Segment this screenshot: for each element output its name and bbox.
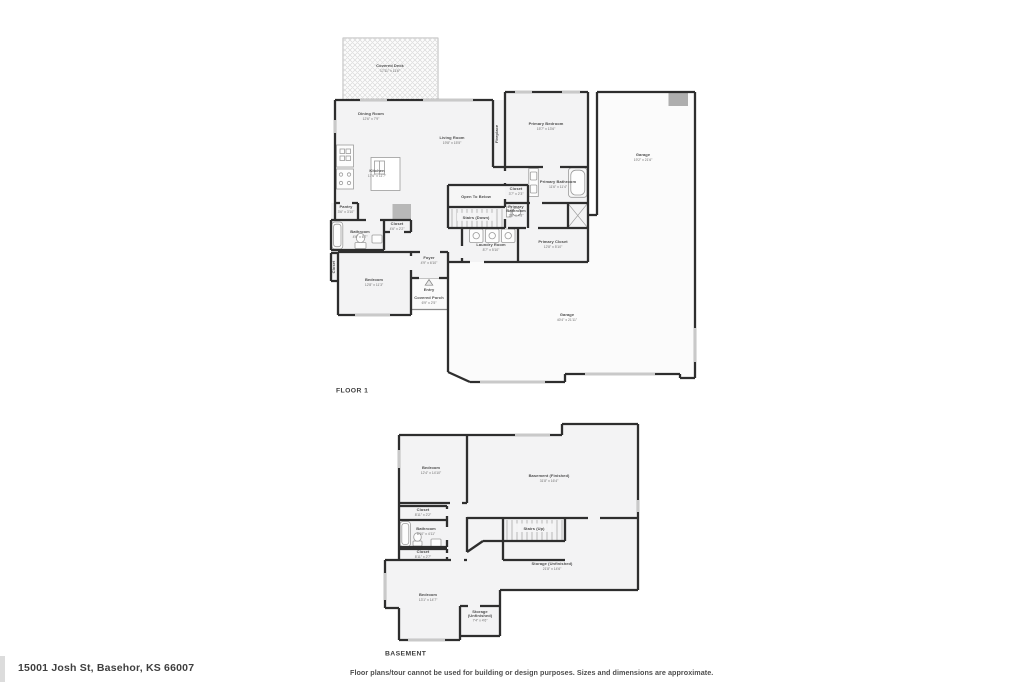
room-label: Closet [391,221,404,226]
room-label: Laundry Room [476,242,506,247]
room-label: 4'6" x 6'7" [353,235,369,239]
room-label: 12'6" x 7'9" [363,117,381,121]
room-label: Entry [424,287,435,292]
room-label: Open To Below [461,194,492,199]
room-label: Bathroom [350,229,370,234]
room-label: 7'4" x 4'6" [473,619,489,623]
room-label: 8'7" x 5'10" [483,248,501,252]
property-address: 15001 Josh St, Basehor, KS 66007 [18,662,194,674]
room-label: 8'10" x 4'11" [417,532,436,536]
room-label: Closet [510,186,523,191]
room-label: 8'11" x 2'2" [415,513,432,517]
room-label: Primary Bedroom [529,121,564,126]
room-label: 12'8" x 5'10" [544,245,563,249]
room-label: Bathroom [416,526,436,531]
room-label: 4'6" x 2'2" [390,227,406,231]
room-label: Stairs (Down) [463,215,490,220]
room-label: 11'6" x 11'4" [549,185,568,189]
room-label: Closet [417,507,430,512]
page-edge-shadow [0,656,5,682]
room-label: Bedroom [365,277,383,282]
room-label: Basement (Finished) [529,473,570,478]
room-label: 19'2" x 21'6" [634,158,653,162]
room-label: 13'1" x 14'7" [419,598,438,602]
room-label: Dining Room [358,111,384,116]
room-label: Foyer [423,255,435,260]
room-label: Bathroom [506,208,526,213]
room-label: Stairs (Up) [523,526,545,531]
room-label: Primary Bathroom [540,179,577,184]
room-label: 12'4" x 14'10" [421,471,442,475]
room-label: Fireplace [494,124,499,143]
basement-plan: Bedroom12'4" x 14'10"Basement (Finished)… [385,424,638,658]
room-label: 4'9" x 6'10" [421,261,439,265]
room-label: Living Room [439,135,464,140]
room-label: Covered Porch [414,295,444,300]
basement-title: BASEMENT [385,651,427,658]
floorplan-canvas: Covered Deck17'11" x 11'6"Dining Room12'… [0,0,1024,682]
room-label: 8'11" x 2'7" [415,555,432,559]
room-label: Bedroom [422,465,440,470]
room-label: Garage [636,152,651,157]
room-label: 3'7" x 2'3" [509,192,525,196]
floorplan-page: { "address": "15001 Josh St, Basehor, KS… [0,0,1024,682]
room-label: Garage [560,312,575,317]
room-label: Covered Deck [376,63,404,68]
room-label: Primary Closet [538,239,568,244]
room-label: 6'9" x 2'5" [422,301,438,305]
room-label: Pantry [340,204,354,209]
room-label: 19'8" x 15'5" [443,141,462,145]
room-label: 3'6" x 3'10" [338,210,356,214]
room-label: 31'8" x 16'4" [540,479,559,483]
room-label: Kitchen [369,168,385,173]
floor1-plan: Covered Deck17'11" x 11'6"Dining Room12'… [331,38,695,395]
room-label: Closet [331,260,336,273]
room-label: Closet [417,549,430,554]
room-label: 40'4" x 21'11" [557,318,578,322]
floor1-title: FLOOR 1 [336,388,368,395]
room-label: 17'11" x 11'6" [380,69,401,73]
room-label: 15'7" x 13'6" [537,127,556,131]
room-label: Bedroom [419,592,437,597]
room-label: 12'8" x 11'3" [365,283,384,287]
room-label: 21'8" x 14'6" [543,567,562,571]
room-label: (Unfinished) [468,613,493,618]
room-label: 17'6" x 11'7" [368,174,387,178]
room-label: Storage (Unfinished) [532,561,574,566]
room-label: 3'8" x 4'8" [509,214,525,218]
disclaimer-text: Floor plans/tour cannot be used for buil… [350,668,713,677]
